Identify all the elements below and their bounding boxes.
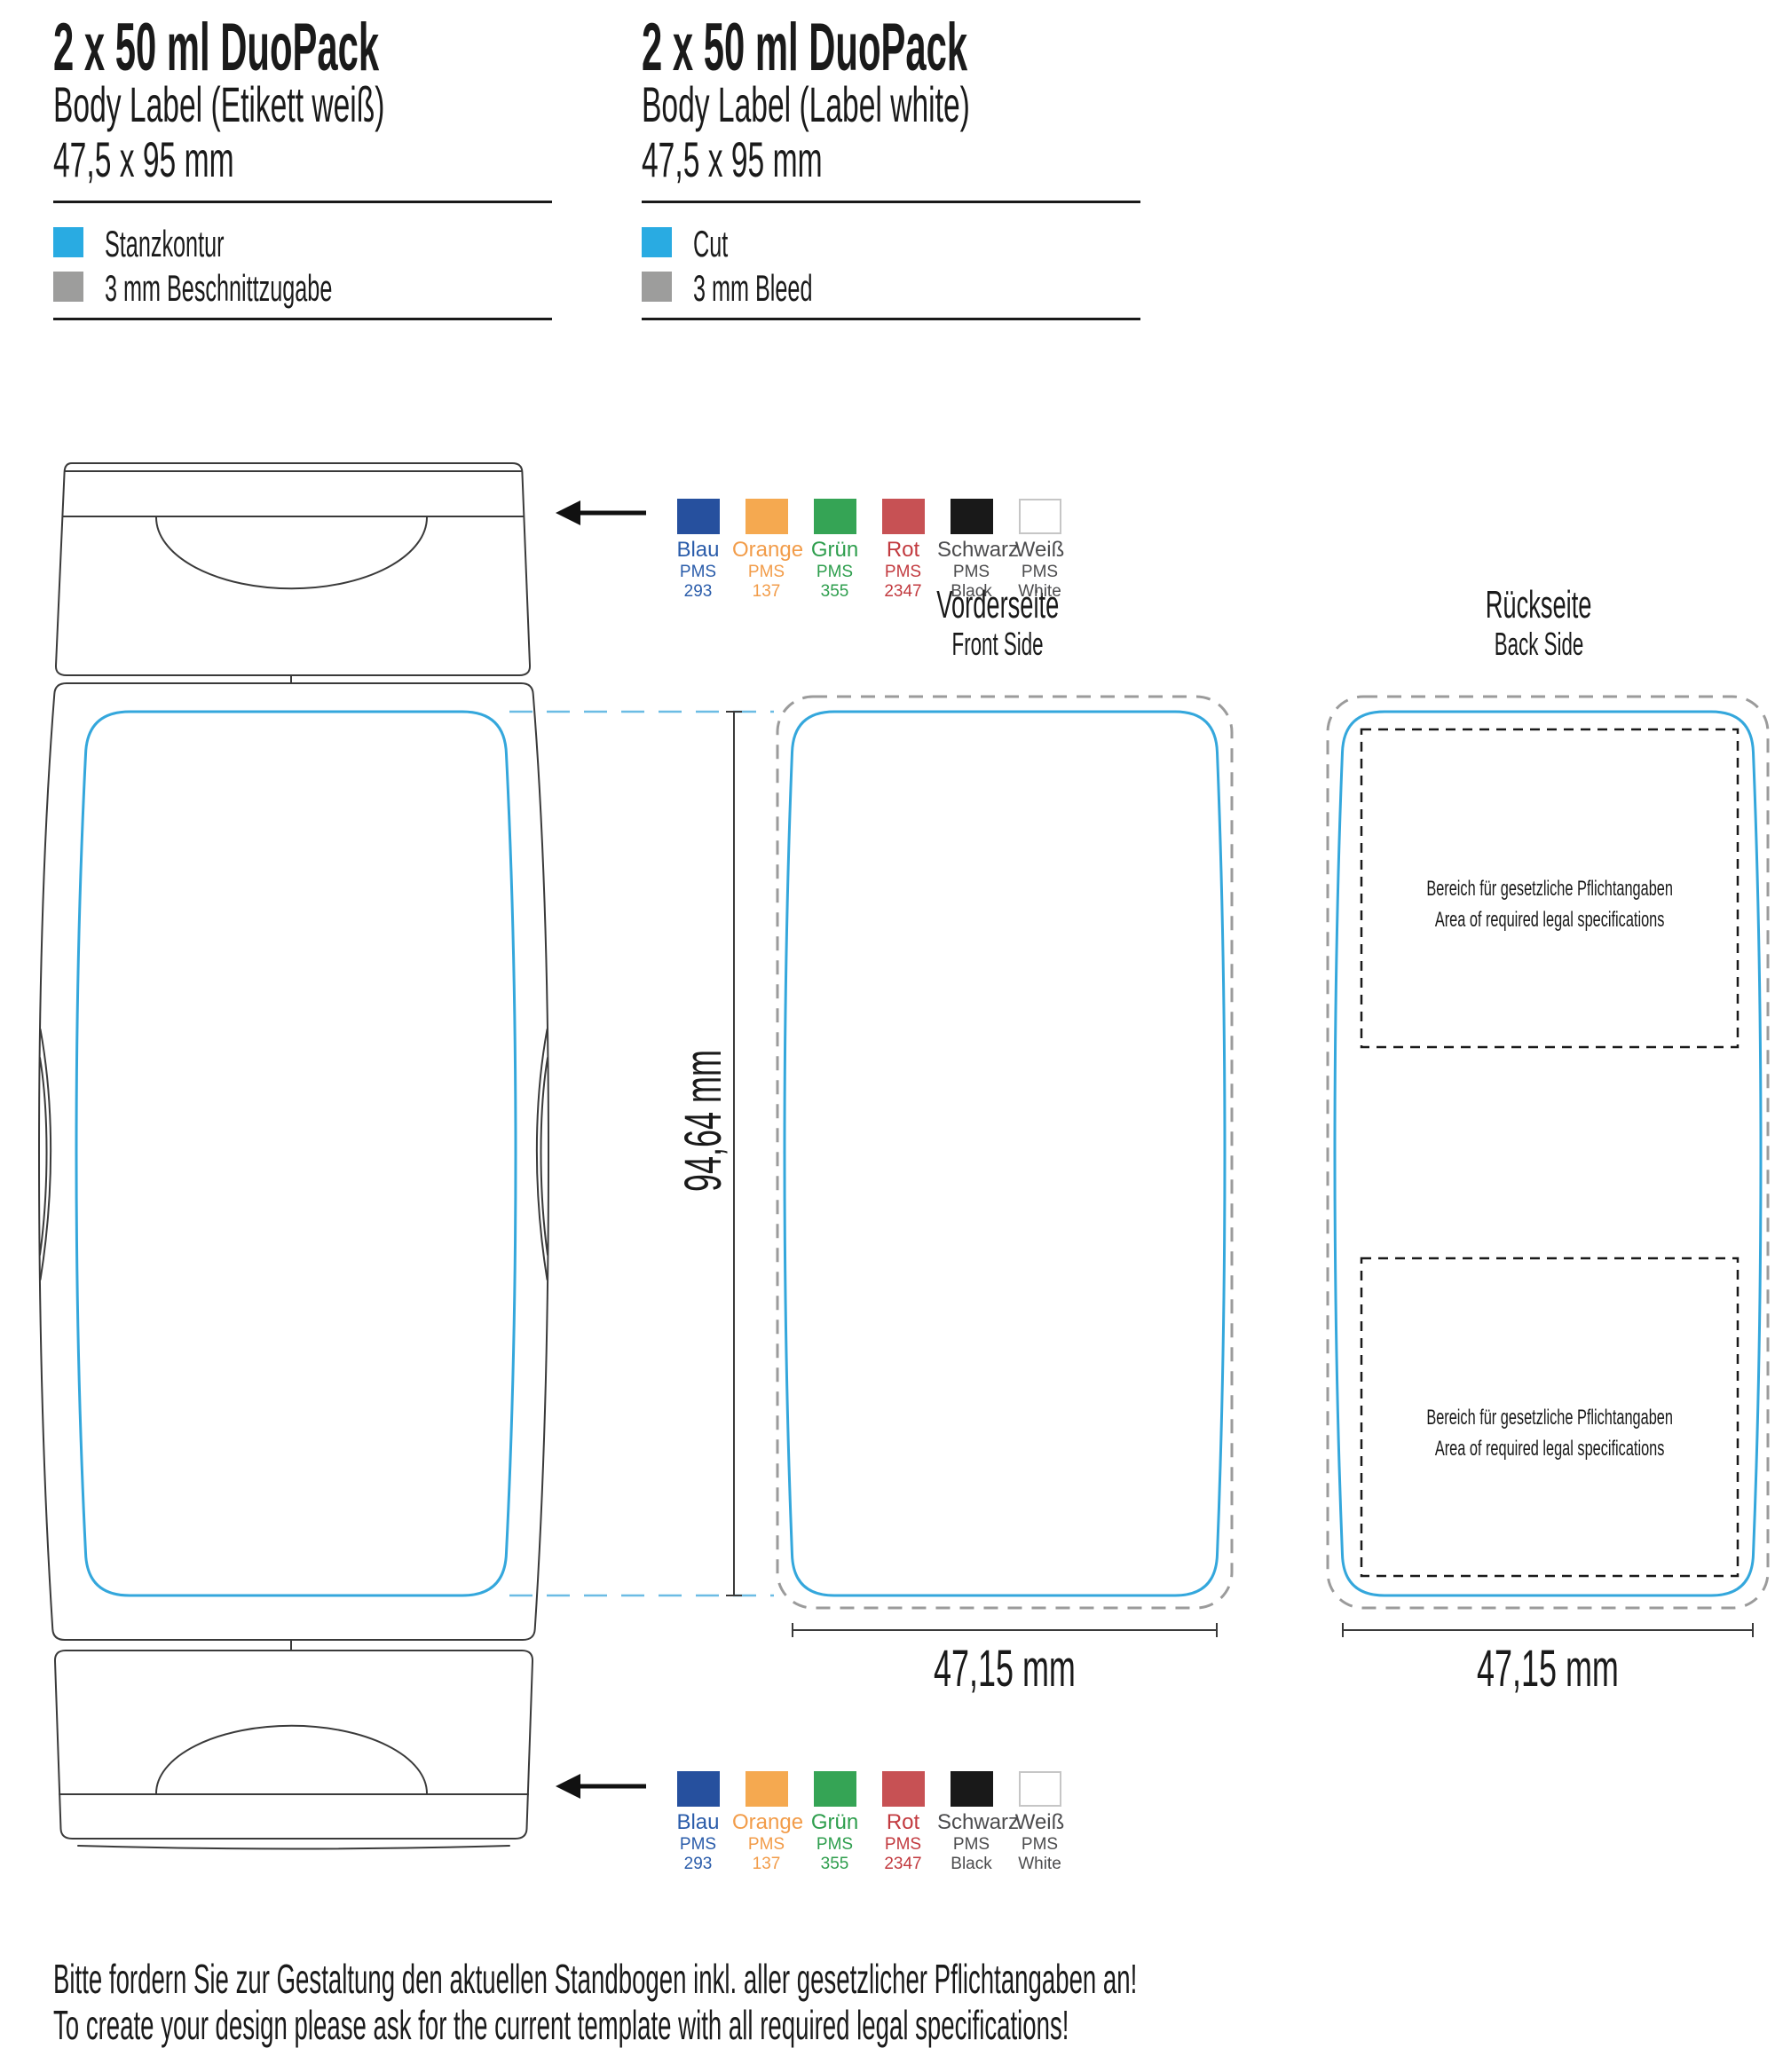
swatch-pms: PMS White: [1006, 1835, 1074, 1874]
swatch-name: Weiß: [1006, 538, 1074, 563]
footer-note-de: Bitte fordern Sie zur Gestaltung den akt…: [53, 1956, 1775, 2002]
pms-color-row-bottom: Blau PMS 293 Orange PMS 137 Grün PMS 355…: [664, 1769, 1074, 1874]
swatch-orange: Orange PMS 137: [732, 1769, 801, 1874]
swatch-name: Weiß: [1006, 1810, 1074, 1835]
swatch-pms: PMS Black: [937, 563, 1006, 602]
swatch-pms: PMS 2347: [869, 1835, 937, 1874]
dieline-drawing: [0, 0, 1775, 2072]
legal-area-text-bottom: Bereich für gesetzliche Pflichtangaben A…: [1283, 1402, 1775, 1464]
swatch-name: Blau: [664, 1810, 732, 1835]
bottle-top-cap-indent-curve: [156, 517, 427, 588]
legend-bleed-swatch-en: [642, 272, 672, 302]
back-width-dimension-label: 47,15 mm: [1282, 1643, 1775, 1695]
legend-bleed-label-de: 3 mm Beschnittzugabe: [105, 270, 484, 307]
swatch-name: Grün: [801, 538, 869, 563]
swatch-orange: Orange PMS 137: [732, 497, 801, 602]
bottle-grip-curve-right-inner: [541, 1058, 548, 1255]
back-side-title: Rückseite: [1273, 586, 1775, 625]
front-width-dimension-label: 47,15 mm: [738, 1643, 1271, 1695]
color-swatch: [745, 1771, 788, 1807]
swatch-pms: PMS 355: [801, 1835, 869, 1874]
swatch-name: Orange: [732, 538, 801, 563]
back-side-subtitle: Back Side: [1273, 628, 1775, 660]
color-swatch: [882, 499, 925, 534]
swatch-name: Blau: [664, 538, 732, 563]
swatch-schwarz: Schwarz PMS Black: [937, 1769, 1006, 1874]
legend-bleed-label-en: 3 mm Bleed: [693, 270, 892, 307]
swatch-pms: PMS 355: [801, 563, 869, 602]
color-swatch: [1019, 1771, 1061, 1807]
swatch-schwarz: Schwarz PMS Black: [937, 497, 1006, 602]
pms-color-row-top: Blau PMS 293 Orange PMS 137 Grün PMS 355…: [664, 497, 1074, 602]
swatch-name: Schwarz: [937, 538, 1006, 563]
legend-cut-label-de: Stanzkontur: [105, 225, 304, 263]
color-swatch: [677, 499, 720, 534]
dieline-template-page: 2 x 50 ml DuoPack Body Label (Etikett we…: [0, 0, 1775, 2072]
front-cut-contour: [785, 712, 1225, 1595]
swatch-pms: PMS 2347: [869, 563, 937, 602]
swatch-blau: Blau PMS 293: [664, 1769, 732, 1874]
swatch-name: Grün: [801, 1810, 869, 1835]
bottle-bottom-cap-lip-line: [78, 1846, 509, 1849]
swatch-name: Rot: [869, 538, 937, 563]
page-title-de: 2 x 50 ml DuoPack: [53, 14, 645, 82]
swatch-gruen: Grün PMS 355: [801, 1769, 869, 1874]
swatch-name: Rot: [869, 1810, 937, 1835]
color-swatch: [951, 1771, 993, 1807]
color-swatch: [745, 499, 788, 534]
swatch-rot: Rot PMS 2347: [869, 497, 937, 602]
page-subtitle-de: Body Label (Etikett weiß): [53, 78, 605, 131]
bottle-grip-curve-left-inner: [40, 1058, 47, 1255]
divider-de-bottom: [53, 318, 552, 320]
color-swatch: [951, 499, 993, 534]
footer-note-en: To create your design please ask for the…: [53, 2002, 1746, 2048]
back-bleed-contour: [1328, 697, 1768, 1608]
color-swatch: [814, 499, 856, 534]
color-swatch: [1019, 499, 1061, 534]
swatch-pms: PMS Black: [937, 1835, 1006, 1874]
page-title-en: 2 x 50 ml DuoPack: [642, 14, 1234, 82]
height-dimension-label: 94,64 mm: [438, 1095, 970, 1146]
front-bleed-contour: [777, 697, 1232, 1608]
swatch-rot: Rot PMS 2347: [869, 1769, 937, 1874]
label-size-en: 47,5 x 95 mm: [642, 133, 943, 186]
swatch-pms: PMS 293: [664, 1835, 732, 1874]
swatch-gruen: Grün PMS 355: [801, 497, 869, 602]
bottle-top-cap-outline: [56, 463, 530, 675]
color-swatch: [882, 1771, 925, 1807]
swatch-blau: Blau PMS 293: [664, 497, 732, 602]
label-size-de: 47,5 x 95 mm: [53, 133, 354, 186]
swatch-pms: PMS 137: [732, 1835, 801, 1874]
bottle-body-outline: [39, 683, 548, 1640]
swatch-pms: PMS White: [1006, 563, 1074, 602]
color-swatch: [677, 1771, 720, 1807]
divider-en-top: [642, 201, 1140, 203]
swatch-pms: PMS 293: [664, 563, 732, 602]
swatch-name: Orange: [732, 1810, 801, 1835]
legend-cut-label-en: Cut: [693, 225, 751, 263]
left-arrow-icon-top: [556, 500, 646, 525]
swatch-name: Schwarz: [937, 1810, 1006, 1835]
divider-de-top: [53, 201, 552, 203]
swatch-weiss: Weiß PMS White: [1006, 1769, 1074, 1874]
legend-cut-swatch-de: [53, 227, 83, 257]
legend-cut-swatch-en: [642, 227, 672, 257]
bottle-bottom-cap-outline: [55, 1651, 532, 1839]
swatch-pms: PMS 137: [732, 563, 801, 602]
legal-area-text-top: Bereich für gesetzliche Pflichtangaben A…: [1283, 873, 1775, 935]
color-swatch: [814, 1771, 856, 1807]
legend-bleed-swatch-de: [53, 272, 83, 302]
divider-en-bottom: [642, 318, 1140, 320]
swatch-weiss: Weiß PMS White: [1006, 497, 1074, 602]
front-side-subtitle: Front Side: [731, 628, 1264, 660]
left-arrow-icon-bottom: [556, 1774, 646, 1799]
bottle-label-cut-contour: [76, 712, 516, 1595]
bottle-bottom-cap-indent-curve: [156, 1726, 427, 1793]
page-subtitle-en: Body Label (Label white): [642, 78, 1188, 131]
